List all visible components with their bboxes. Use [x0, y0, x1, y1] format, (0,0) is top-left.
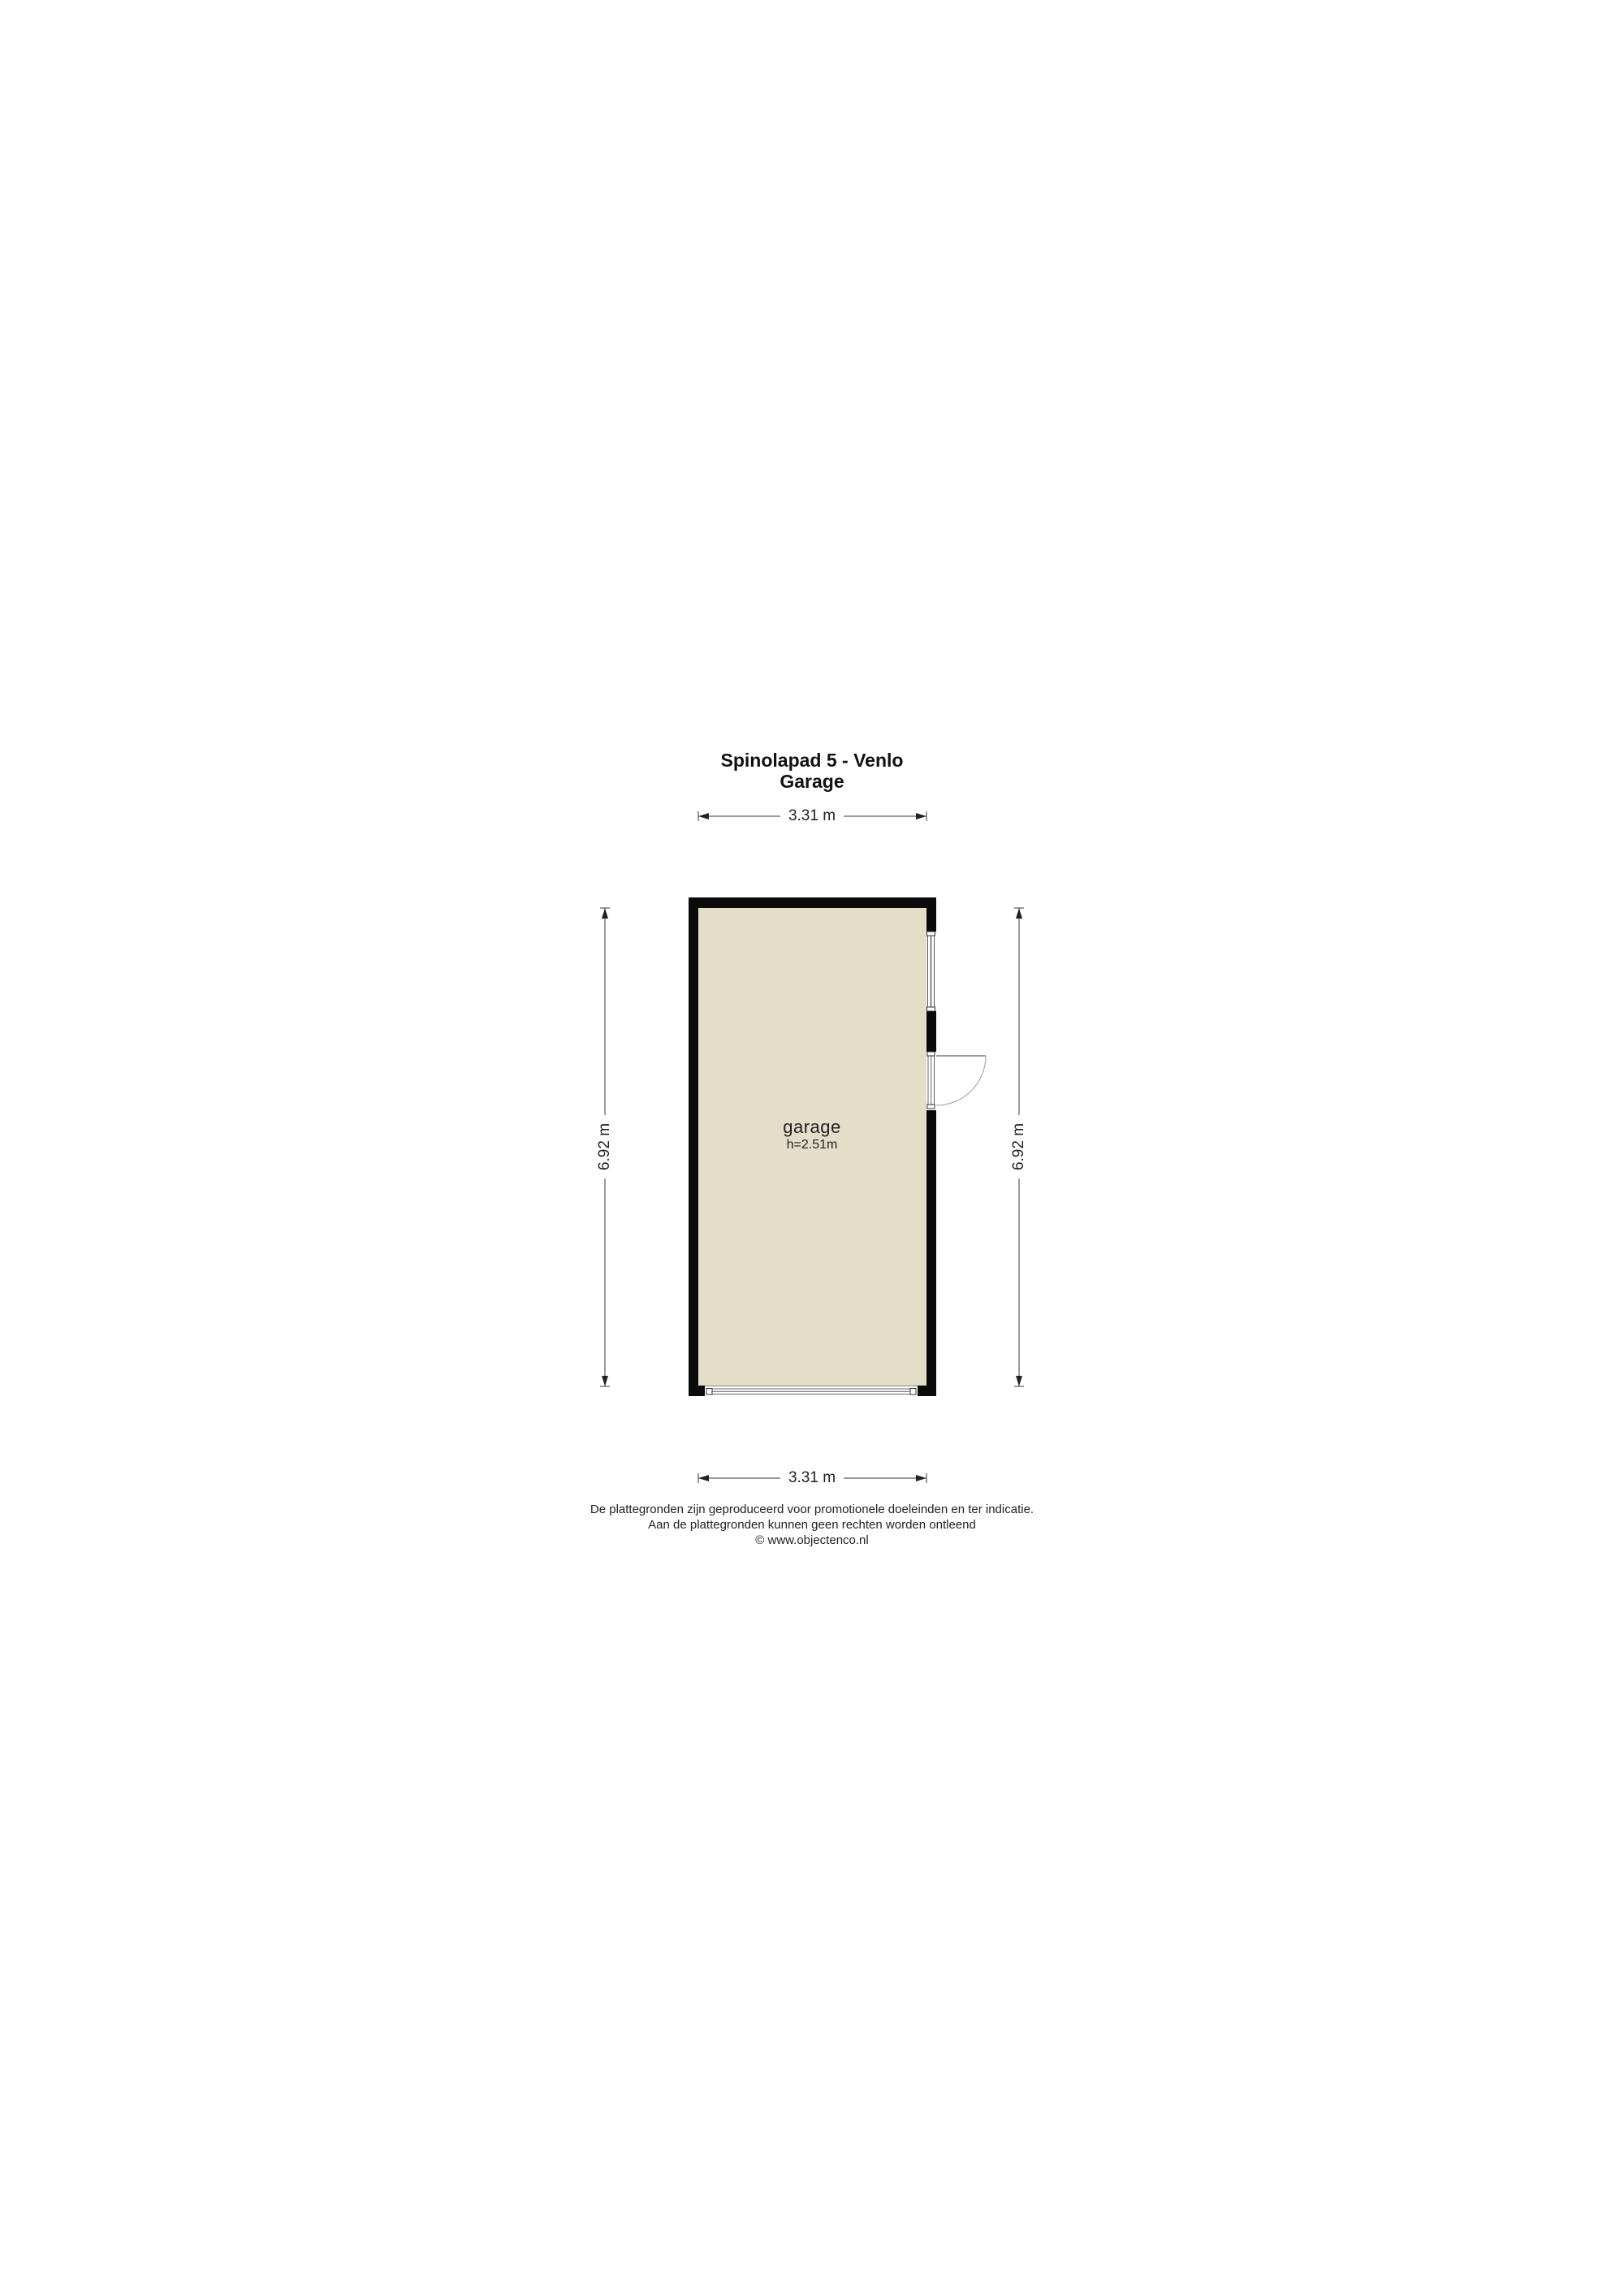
garage-door-icon	[705, 1386, 918, 1396]
dimension-label-top: 3.31 m	[780, 807, 844, 825]
garage-door-cap-left	[706, 1389, 712, 1395]
wall-bottom-left-stub	[689, 1386, 705, 1396]
door-cap-top	[927, 1052, 935, 1056]
room-ceiling-height-label: h=2.51m	[0, 1138, 1624, 1152]
footer-disclaimer-line1: De plattegronden zijn geproduceerd voor …	[0, 1502, 1624, 1517]
wall-top	[689, 897, 936, 908]
dim-left-arrow-bottom	[602, 1376, 608, 1386]
door-swing-arc	[936, 1056, 986, 1105]
door-cap-bottom	[927, 1105, 935, 1109]
footer-copyright: © www.objectenco.nl	[0, 1533, 1624, 1548]
room-name-label: garage	[0, 1117, 1624, 1138]
swing-door-icon	[926, 1052, 986, 1110]
dim-right-arrow-top	[1016, 908, 1022, 919]
wall-right-upper	[926, 897, 936, 932]
dim-right-arrow-bottom	[1016, 1376, 1022, 1386]
window-cap-bottom	[927, 1007, 935, 1011]
wall-right-middle	[926, 1011, 936, 1052]
window-cap-top	[927, 932, 935, 936]
footer-disclaimer: De plattegronden zijn geproduceerd voor …	[0, 1502, 1624, 1548]
garage-door-cap-right	[910, 1389, 916, 1395]
window-icon	[926, 932, 936, 1011]
wall-right-lower	[926, 1110, 936, 1396]
dimension-label-bottom-row: 3.31 m	[0, 1469, 1624, 1487]
dimension-label-bottom: 3.31 m	[780, 1469, 844, 1487]
floor-plan-page: Spinolapad 5 - Venlo Garage	[0, 0, 1624, 2296]
dim-left-arrow-top	[602, 908, 608, 919]
footer-disclaimer-line2: Aan de plattegronden kunnen geen rechten…	[0, 1517, 1624, 1533]
dimension-label-top-row: 3.31 m	[0, 807, 1624, 825]
